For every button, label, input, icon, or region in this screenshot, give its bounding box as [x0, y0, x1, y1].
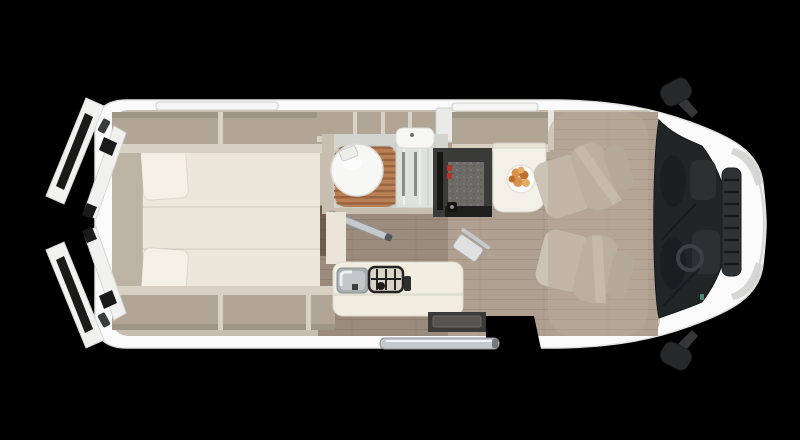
campervan-floorplan: [0, 0, 800, 440]
floorplan-stage: [0, 0, 800, 440]
top-locker-divider: [218, 112, 223, 146]
dashboard-upper: [690, 160, 716, 200]
bottom-locker-lip: [112, 286, 338, 295]
fridge-latch-1: [447, 165, 452, 171]
bottom-locker-shadow: [112, 324, 335, 330]
hob-knob-cylinder: [404, 276, 411, 291]
fridge-side-slot: [437, 152, 443, 210]
bedroom-window-slot: [156, 102, 278, 110]
door-rail: [380, 338, 499, 349]
fridge-unit: [433, 148, 492, 217]
food-item-6: [518, 167, 525, 174]
kitchen-side-panel: [326, 212, 346, 264]
food-item-5: [509, 176, 516, 183]
front-grille: [722, 168, 741, 276]
fridge-handle-dot: [450, 205, 454, 209]
bottom-locker-divider-1: [218, 294, 223, 330]
fridge-latch-2: [447, 173, 452, 179]
hob-burner: [377, 282, 385, 290]
rear-bedroom: [112, 145, 320, 302]
food-item-4: [522, 179, 530, 187]
cab-seat-silhouette-top: [660, 155, 686, 207]
towel-bar-2: [414, 152, 417, 196]
sink-drain-item: [352, 284, 358, 290]
cab-roof-cutaway-overlay: [548, 112, 648, 336]
basin-drain: [410, 133, 414, 137]
door-rail-endcap: [492, 339, 498, 348]
bottom-locker-divider-2: [306, 294, 311, 330]
fridge-speckle: [448, 162, 484, 208]
headboard-panel: [112, 148, 142, 288]
entry-step: [433, 316, 481, 327]
towel-bar-1: [402, 152, 405, 196]
cab-seat-silhouette-bottom: [660, 237, 686, 289]
dinette-window-slot: [452, 103, 538, 111]
washbasin: [396, 128, 434, 148]
windshield-green-sticker: [700, 294, 704, 300]
pillow-top: [140, 145, 189, 200]
top-locker-lip: [112, 144, 338, 153]
top-locker-shadow: [112, 112, 335, 118]
dinette-locker-shadow: [452, 112, 548, 118]
